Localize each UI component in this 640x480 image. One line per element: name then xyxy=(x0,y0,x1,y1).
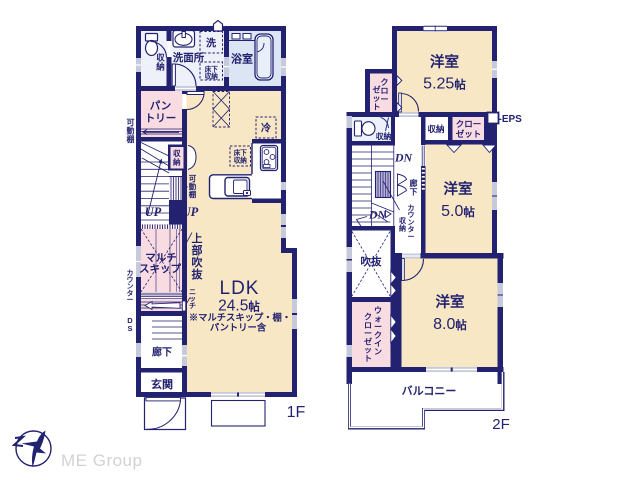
svg-text:納: 納 xyxy=(156,62,165,72)
svg-text:棚: 棚 xyxy=(127,134,135,144)
svg-text:洋室: 洋室 xyxy=(430,53,459,71)
svg-text:ー: ー xyxy=(408,234,415,241)
svg-text:廊: 廊 xyxy=(410,178,418,188)
svg-text:パン: パン xyxy=(150,100,172,112)
svg-text:※マルチスキップ・棚・: ※マルチスキップ・棚・ xyxy=(189,312,291,323)
svg-text:動: 動 xyxy=(127,126,135,136)
svg-text:冷: 冷 xyxy=(261,122,271,135)
svg-text:クロー: クロー xyxy=(456,119,482,129)
svg-text:ゼ: ゼ xyxy=(373,85,381,95)
svg-text:棚: 棚 xyxy=(189,189,197,199)
svg-text:バルコニー: バルコニー xyxy=(402,385,457,398)
svg-text:収: 収 xyxy=(399,216,407,225)
svg-text:LDK: LDK xyxy=(220,278,260,299)
svg-text:収: 収 xyxy=(173,148,181,158)
svg-text:洋室: 洋室 xyxy=(436,293,465,311)
svg-text:吹抜: 吹抜 xyxy=(361,255,382,268)
svg-text:1F: 1F xyxy=(287,404,306,421)
svg-text:収納: 収納 xyxy=(205,72,219,81)
svg-text:タ: タ xyxy=(127,288,134,297)
svg-text:納: 納 xyxy=(399,224,406,233)
svg-text:収納: 収納 xyxy=(427,124,444,134)
svg-text:ン: ン xyxy=(408,218,415,226)
svg-text:S: S xyxy=(127,324,132,333)
svg-text:DN: DN xyxy=(368,208,388,222)
svg-text:納: 納 xyxy=(173,157,181,167)
svg-text:収納: 収納 xyxy=(376,131,392,141)
svg-text:ン: ン xyxy=(127,283,134,291)
svg-text:ウ: ウ xyxy=(127,275,134,284)
svg-text:床下: 床下 xyxy=(205,65,219,74)
svg-text:ト: ト xyxy=(373,103,381,112)
svg-text:DN: DN xyxy=(394,151,414,165)
svg-text:洗面所: 洗面所 xyxy=(173,51,205,64)
svg-text:吹: 吹 xyxy=(192,255,204,269)
svg-text:UP: UP xyxy=(145,205,162,219)
svg-text:スキップ: スキップ xyxy=(139,262,181,275)
svg-text:トリー: トリー xyxy=(145,113,177,125)
svg-text:床下: 床下 xyxy=(234,148,248,157)
svg-text:下: 下 xyxy=(410,188,418,197)
svg-text:タ: タ xyxy=(408,225,415,234)
svg-text:廊下: 廊下 xyxy=(152,346,172,359)
svg-text:2F: 2F xyxy=(492,416,510,433)
svg-text:ー: ー xyxy=(127,297,134,304)
svg-text:収納: 収納 xyxy=(234,156,248,165)
svg-text:チ: チ xyxy=(189,302,196,310)
svg-text:ゼット: ゼット xyxy=(456,129,482,139)
svg-text:抜: 抜 xyxy=(192,267,204,281)
svg-text:ク: ク xyxy=(381,77,389,87)
svg-text:部: 部 xyxy=(192,243,203,257)
svg-text:カ: カ xyxy=(408,204,415,212)
svg-text:洗: 洗 xyxy=(206,37,216,50)
svg-text:-EPS: -EPS xyxy=(499,114,523,125)
svg-text:ー: ー xyxy=(381,95,389,104)
svg-text:上: 上 xyxy=(192,231,203,245)
svg-text:浴室: 浴室 xyxy=(231,52,253,66)
svg-text:パントリー含: パントリー含 xyxy=(210,322,267,333)
svg-text:玄関: 玄関 xyxy=(151,377,173,391)
svg-text:ウ: ウ xyxy=(408,210,415,219)
svg-text:洋室: 洋室 xyxy=(444,180,473,198)
svg-text:ト: ト xyxy=(364,354,372,363)
svg-text:UP: UP xyxy=(182,205,199,219)
svg-text:ME Group: ME Group xyxy=(61,451,142,470)
svg-text:ニ: ニ xyxy=(189,289,196,296)
svg-text:ッ: ッ xyxy=(189,296,196,303)
svg-text:ン: ン xyxy=(374,348,382,357)
svg-text:カ: カ xyxy=(127,269,134,277)
